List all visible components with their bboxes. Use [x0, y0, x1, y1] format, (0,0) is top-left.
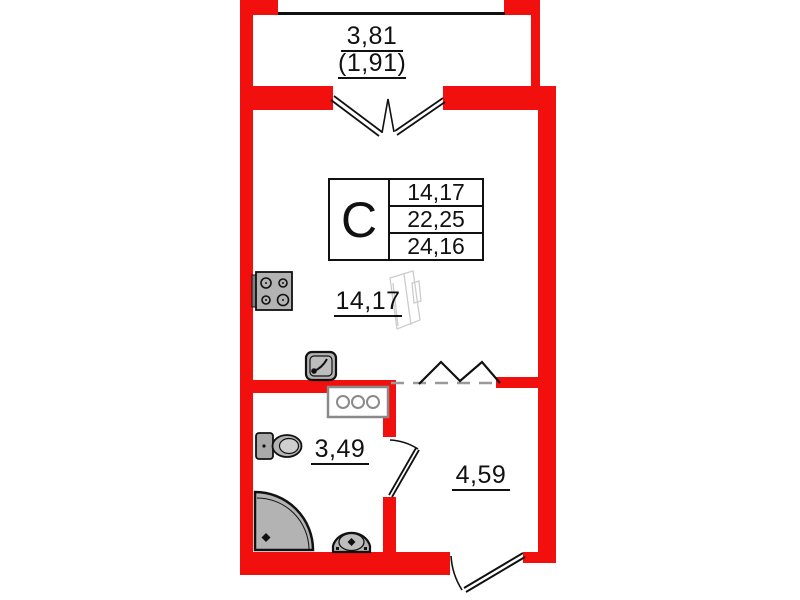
floor-plan-canvas: 3,81 (1,91) С 14,17 22,25 24,16 14,17 3,… — [0, 0, 800, 600]
room-area-bathroom: 3,49 — [311, 436, 369, 465]
unit-type-letter: С — [330, 180, 390, 259]
unit-total-area: 22,25 — [390, 207, 482, 234]
room-area-living-kitchen: 14,17 — [334, 288, 402, 317]
unit-info-table: С 14,17 22,25 24,16 — [328, 178, 484, 261]
toilet-icon — [256, 433, 302, 459]
stove-icon — [252, 272, 292, 310]
washing-machine-icon — [328, 387, 388, 417]
balcony-width-dimension: 3,81 — [341, 23, 403, 52]
unit-area-values: 14,17 22,25 24,16 — [390, 180, 482, 259]
kitchen-sink-icon — [306, 352, 336, 380]
bathroom-door-icon — [389, 440, 419, 497]
unit-living-area: 14,17 — [390, 180, 482, 207]
balcony-double-door-icon — [331, 96, 445, 136]
shower-icon — [255, 492, 313, 550]
room-area-hallway: 4,59 — [452, 462, 510, 491]
unit-overall-area: 24,16 — [390, 234, 482, 259]
balcony-half-width-dimension: (1,91) — [338, 50, 406, 79]
wardrobe-zigzag-icon — [419, 362, 500, 384]
entrance-door-icon — [451, 553, 525, 592]
washbasin-icon — [333, 533, 370, 552]
